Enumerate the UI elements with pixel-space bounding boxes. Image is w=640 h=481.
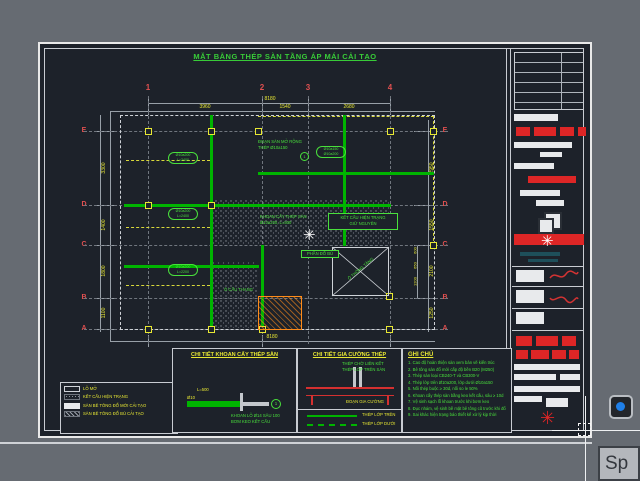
crosshair-vertical xyxy=(585,396,586,481)
legend-item: KẾT CẤU HIỆN TRẠNG xyxy=(64,394,174,400)
column xyxy=(145,202,152,209)
column xyxy=(386,326,393,333)
beam xyxy=(210,115,213,331)
titleblock-bar xyxy=(514,163,554,169)
dim-text: 3300 xyxy=(101,156,107,180)
grid-col-4: 4 xyxy=(386,83,394,92)
titleblock-rule xyxy=(512,330,584,331)
notes-title: GHI CHÚ xyxy=(408,352,511,358)
titleblock-red-row xyxy=(516,127,586,136)
rebar-tag: Ø10a200L=2200 xyxy=(168,264,198,276)
titleblock-rule xyxy=(512,286,584,287)
annotation: ĐOẠN GIA CƯỜNG xyxy=(346,399,396,405)
grid-col-1: 1 xyxy=(144,83,152,92)
detail-mark-bubble: 1 xyxy=(300,152,309,161)
column xyxy=(208,326,215,333)
rebar-dashed-line xyxy=(258,116,434,117)
stair-opening xyxy=(258,296,302,330)
legend-item: LỖ MỞ xyxy=(64,386,174,392)
application-window: MẶT BẰNG THÉP SÀN TẦNG ÁP MÁI CẢI TẠO 1 … xyxy=(0,0,640,481)
logo-subtext-bar xyxy=(528,259,558,262)
command-input[interactable]: Sp xyxy=(598,446,640,481)
grid-col-2: 2 xyxy=(258,83,266,92)
blue-dot-icon xyxy=(616,402,625,411)
rebar-bar xyxy=(187,401,243,407)
titleblock-bar xyxy=(560,374,580,380)
revision-table xyxy=(514,52,584,110)
beam xyxy=(258,172,434,175)
titleblock-bar xyxy=(514,386,580,392)
legend-swatch-new-slab xyxy=(64,403,80,409)
dim-text: 3960 xyxy=(190,104,220,110)
titleblock-red-row xyxy=(516,350,579,359)
legend-solid-line xyxy=(307,415,357,417)
legend-dashed-line xyxy=(307,424,357,426)
legend-box: LỖ MỞ KẾT CẤU HIỆN TRẠNG SÀN BÊ TÔNG ĐỔ … xyxy=(60,382,178,434)
pickbox-cursor xyxy=(578,423,591,436)
panel-notes: GHI CHÚ 1. Cao độ hoàn thiện sàn xem bản… xyxy=(402,348,512,433)
column xyxy=(208,128,215,135)
column xyxy=(430,128,437,135)
annotation-existing-box: KẾT CẤU HIỆN TRẠNG GIỮ NGUYÊN xyxy=(328,213,398,230)
detail-mark-bubble: 1 xyxy=(271,399,281,409)
legend-label: THÉP LỚP TRÊN xyxy=(362,412,402,418)
signature-scribble xyxy=(548,290,580,306)
dim-line xyxy=(110,341,435,342)
crosshair-horizontal xyxy=(552,430,640,431)
blue-dot-button[interactable] xyxy=(609,395,633,419)
legend-label: THÉP LỚP DƯỚI xyxy=(362,421,402,427)
dim-text: 2680 xyxy=(334,104,364,110)
panel-drill-detail: CHI TIẾT KHOAN CẤY THÉP SÀN L=500 Ø10 KH… xyxy=(172,348,297,433)
titleblock-bar xyxy=(514,374,556,380)
titleblock-rule xyxy=(512,308,584,309)
annotation-patch-box: PHẦN ĐỔ BÙ xyxy=(301,250,339,258)
anchor-bar xyxy=(241,402,269,406)
column xyxy=(255,128,262,135)
stamp-star-icon: ✳ xyxy=(540,408,555,429)
dim-text: L=500 xyxy=(197,387,209,393)
panel-separator xyxy=(298,409,402,410)
slab-line-red xyxy=(306,387,394,389)
column xyxy=(145,128,152,135)
logo-star-icon: ✳ xyxy=(541,232,554,250)
note-line: 1. Cao độ hoàn thiện sàn xem bản vẽ kiến… xyxy=(408,360,509,367)
viewport-bottom-edge xyxy=(0,442,592,444)
titleblock-bar xyxy=(514,364,580,370)
legend-label: SÀN BÊ TÔNG ĐỔ MỚI CẢI TẠO xyxy=(83,403,146,409)
titleblock-red-row xyxy=(516,336,576,346)
titleblock-rule xyxy=(512,266,584,267)
rebar-tag: Ø10a200L=2400 xyxy=(168,152,198,164)
panel-title: CHI TIẾT KHOAN CẤY THÉP SÀN xyxy=(173,352,296,358)
dim-text-total: 8180 xyxy=(254,334,290,340)
name-block xyxy=(516,270,544,282)
stair-label: Ô CẦU THANG xyxy=(224,287,258,293)
name-block xyxy=(516,312,544,324)
column xyxy=(145,326,152,333)
slab-line-red xyxy=(306,395,394,396)
titleblock-bar xyxy=(520,190,560,196)
wall-face xyxy=(240,393,243,411)
annotation-expansion: ĐOẠN SÀN MỞ RỘNG THÉP Ø10a150 xyxy=(258,139,330,152)
titleblock-red-bar xyxy=(528,176,576,183)
column xyxy=(208,202,215,209)
annotation: THÉP CHỜ LIÊN KẾT THÉP LỚP TRÊN SÀN xyxy=(342,361,400,374)
logo-subtext-bar xyxy=(520,252,560,256)
panel-title: CHI TIẾT GIA CƯỜNG THÉP xyxy=(298,352,401,358)
panel-strengthen-detail: CHI TIẾT GIA CƯỜNG THÉP THÉP CHỜ LIÊN KẾ… xyxy=(297,348,402,433)
dim-text: 1100 xyxy=(101,301,107,325)
dim-text-total: 8180 xyxy=(250,96,290,102)
titleblock-bar xyxy=(514,396,542,402)
rebar-dashed-line xyxy=(126,285,210,286)
legend-label: SÀN BÊ TÔNG ĐỔ BÙ CẢI TẠO xyxy=(83,411,144,417)
legend-label: KẾT CẤU HIỆN TRẠNG xyxy=(83,394,128,400)
dim-text: 1800 xyxy=(101,259,107,283)
titleblock-bar xyxy=(514,114,558,121)
rebar-tag: Ø10a200L=2400 xyxy=(168,208,198,220)
drawing-title: MẶT BẰNG THÉP SÀN TẦNG ÁP MÁI CẢI TẠO xyxy=(150,52,420,61)
legend-item: SÀN BÊ TÔNG ĐỔ BÙ CẢI TẠO xyxy=(64,411,174,417)
note-line: 9. Sai khác hiện trạng báo thiết kế xử l… xyxy=(408,412,509,419)
legend-item: SÀN BÊ TÔNG ĐỔ MỚI CẢI TẠO xyxy=(64,403,174,409)
legend-swatch-patch xyxy=(64,411,80,417)
column xyxy=(430,242,437,249)
titleblock-bar xyxy=(546,398,568,407)
rebar-dashed-line xyxy=(433,116,434,246)
beam-leg-red xyxy=(311,395,313,405)
rebar-dashed-line xyxy=(126,227,210,228)
grid-col-3: 3 xyxy=(304,83,312,92)
annotation-drill: KHOAN CẤY THÉP SÀN Ø10a200, L=500 xyxy=(260,214,320,227)
dim-line xyxy=(110,111,435,112)
titleblock-bar xyxy=(514,142,572,148)
titleblock-bar xyxy=(536,200,564,206)
signature-scribble xyxy=(548,268,580,284)
annotation: KHOAN LỖ Ø14 SÂU 100 BƠM KEO KẾT CẤU xyxy=(231,413,293,426)
legend-swatch-existing xyxy=(64,394,80,400)
titleblock-bar xyxy=(540,152,562,157)
legend-label: LỖ MỞ xyxy=(83,386,97,392)
legend-swatch-opening xyxy=(64,386,80,392)
notes-list: 1. Cao độ hoàn thiện sàn xem bản vẽ kiến… xyxy=(408,360,509,419)
command-input-text: Sp xyxy=(605,453,628,474)
dim-line xyxy=(110,111,111,342)
column xyxy=(387,128,394,135)
starburst-marker-icon: ✳ xyxy=(303,226,316,244)
dim-text: 1540 xyxy=(270,104,300,110)
name-block xyxy=(516,290,544,303)
beam xyxy=(124,204,391,207)
dim-text: 1400 xyxy=(101,213,107,237)
